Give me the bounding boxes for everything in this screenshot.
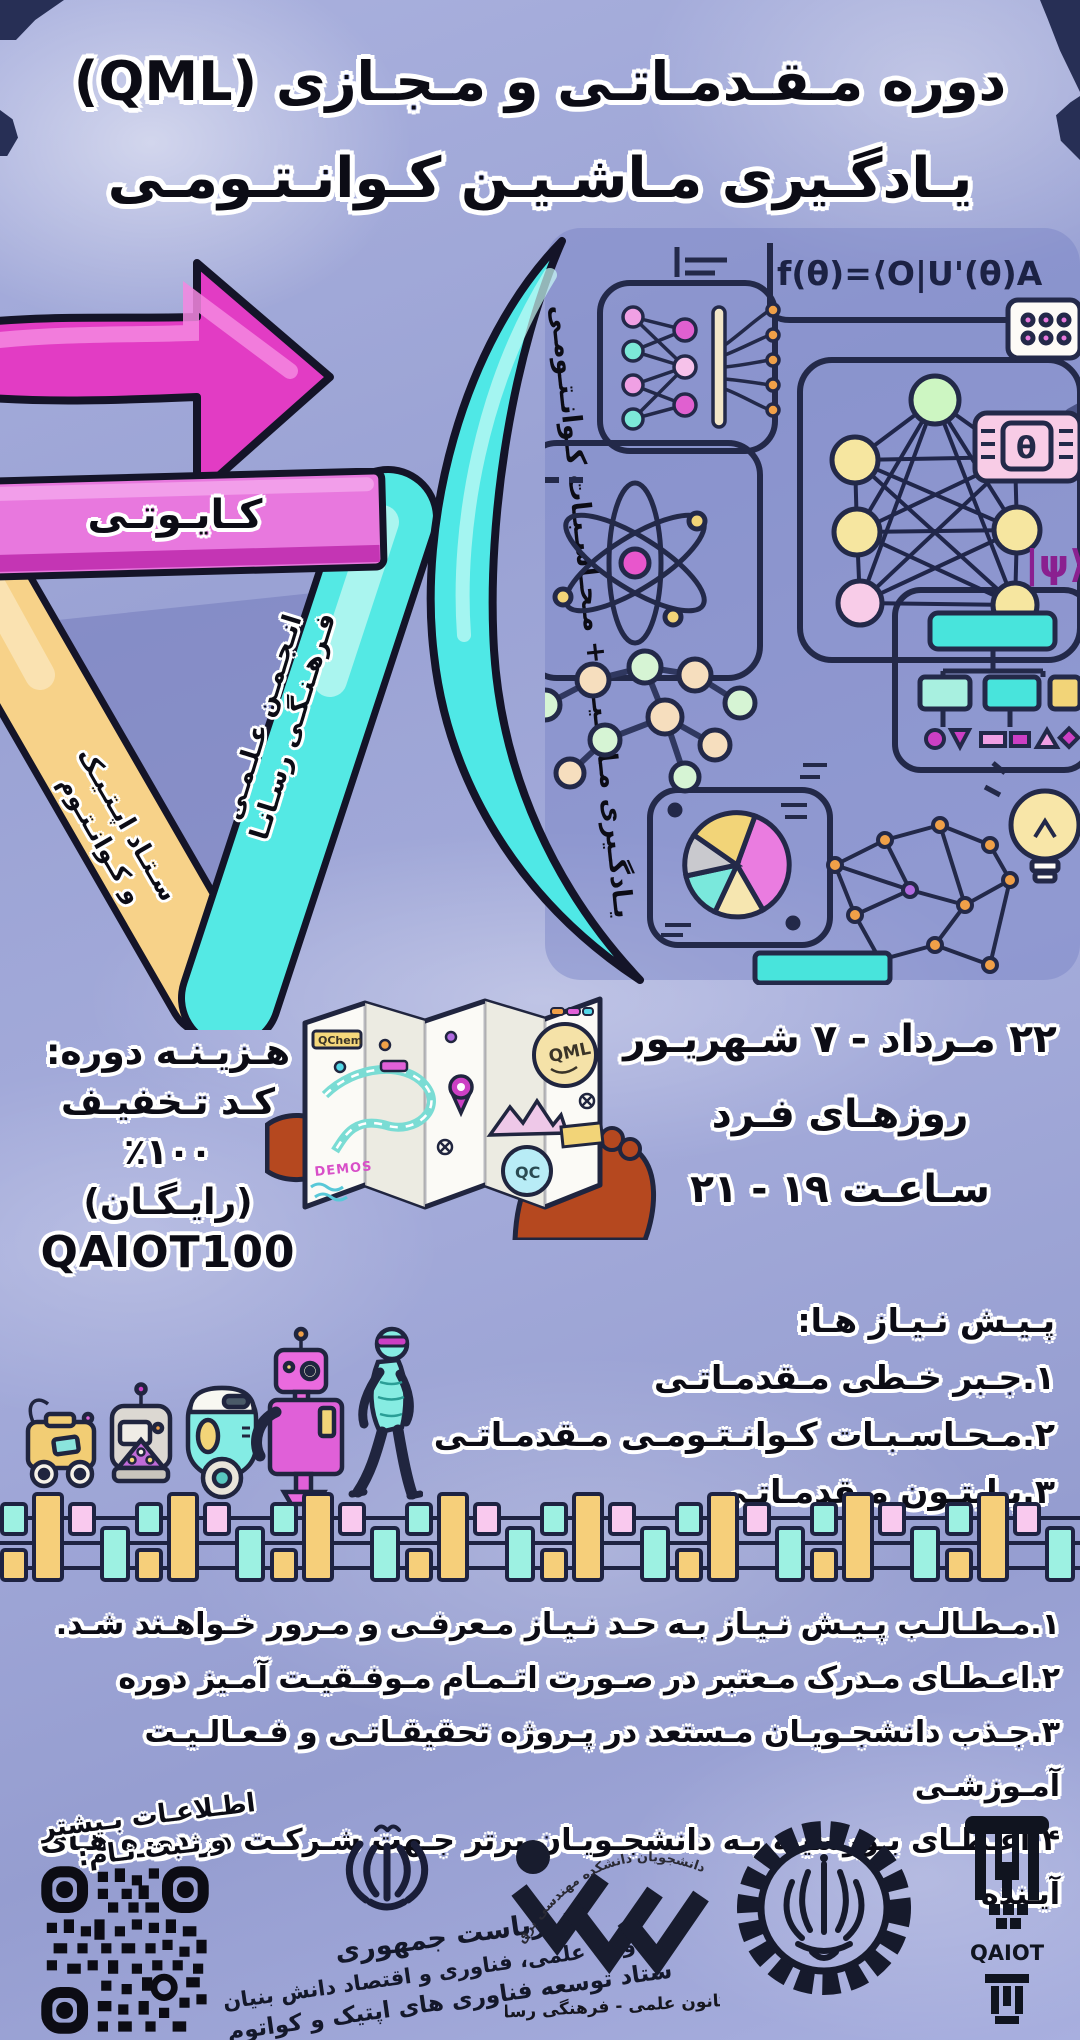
prerequisite-item: ۲.مـحـاسـبـات کـوانـتـومـی مـقدمـاتـی xyxy=(415,1406,1055,1463)
poster-title-line2: یـادگـیری مـاشـیـن کـوانـتـومـی xyxy=(0,146,1080,211)
robot-evolution-illustration xyxy=(8,1292,423,1507)
qaiot-logo-label: QAIOT xyxy=(970,1941,1045,1965)
equation-text: f(θ)=⟨O|U'(θ)A xyxy=(777,254,1043,293)
schedule-days: روزهـای فـرد xyxy=(620,1077,1060,1152)
map-illustration: QML QC QChem DEMOS xyxy=(265,975,670,1240)
schedule-block: ۲۲ مـرداد - ۷ شـهریـور روزهـای فـرد سـاع… xyxy=(620,1002,1060,1227)
map-qc-label: QC xyxy=(515,1163,540,1182)
schedule-time: سـاعـت ۱۹ - ۲۱ xyxy=(620,1152,1060,1227)
rasana-logo: دانشجویان دانشکده مهندسی برق کانون علمی … xyxy=(505,1812,720,2027)
band-qaiot-label: کـایـوتـی xyxy=(20,492,330,538)
prerequisites-block: پـیـش نـیـاز هـا: ۱.جـبر خـطی مـقدمـاتـی… xyxy=(415,1292,1055,1520)
sharif-arc-text: دانشگاه صنعتی شریف xyxy=(728,1812,736,1815)
quantum-collage-illustration: f(θ)=⟨O|U'(θ)A xyxy=(545,225,1080,985)
theta-glyph: θ xyxy=(1016,431,1037,466)
poster-title-line1: دوره مـقـدمـاتـی و مـجـازی (QML) xyxy=(0,50,1080,113)
prerequisite-item: ۱.جـبر خـطی مـقدمـاتـی xyxy=(415,1349,1055,1406)
iran-emblem-logo xyxy=(330,1818,445,1923)
quantum-circuit-divider xyxy=(0,1488,1080,1588)
qaiot-logo: QAIOT xyxy=(945,1812,1075,2032)
course-poster: دوره مـقـدمـاتـی و مـجـازی (QML) یـادگـی… xyxy=(0,0,1080,2040)
map-qchem-label: QChem xyxy=(318,1034,362,1047)
rasana-caption: کانون علمی - فرهنگی رسانا xyxy=(505,1990,720,2023)
schedule-dates: ۲۲ مـرداد - ۷ شـهریـور xyxy=(620,1002,1060,1077)
corner-accent-top-left xyxy=(0,0,64,40)
note-item: ۱.مـطـالـب پـیـش نـیـاز بـه حـد نـیـاز م… xyxy=(15,1598,1060,1652)
psi-ket: |ψ⟩ xyxy=(1025,542,1080,587)
registration-qr-code xyxy=(40,1865,210,2035)
prerequisites-heading: پـیـش نـیـاز هـا: xyxy=(415,1292,1055,1349)
note-item: ۲.اعـطـای مـدرک مـعتبر در صـورت اتـمـام … xyxy=(15,1652,1060,1706)
sharif-university-logo: دانشگاه صنعتی شریف xyxy=(728,1812,920,2004)
svg-text:دانشگاه صنعتی شریف: دانشگاه صنعتی شریف xyxy=(728,1812,736,1815)
